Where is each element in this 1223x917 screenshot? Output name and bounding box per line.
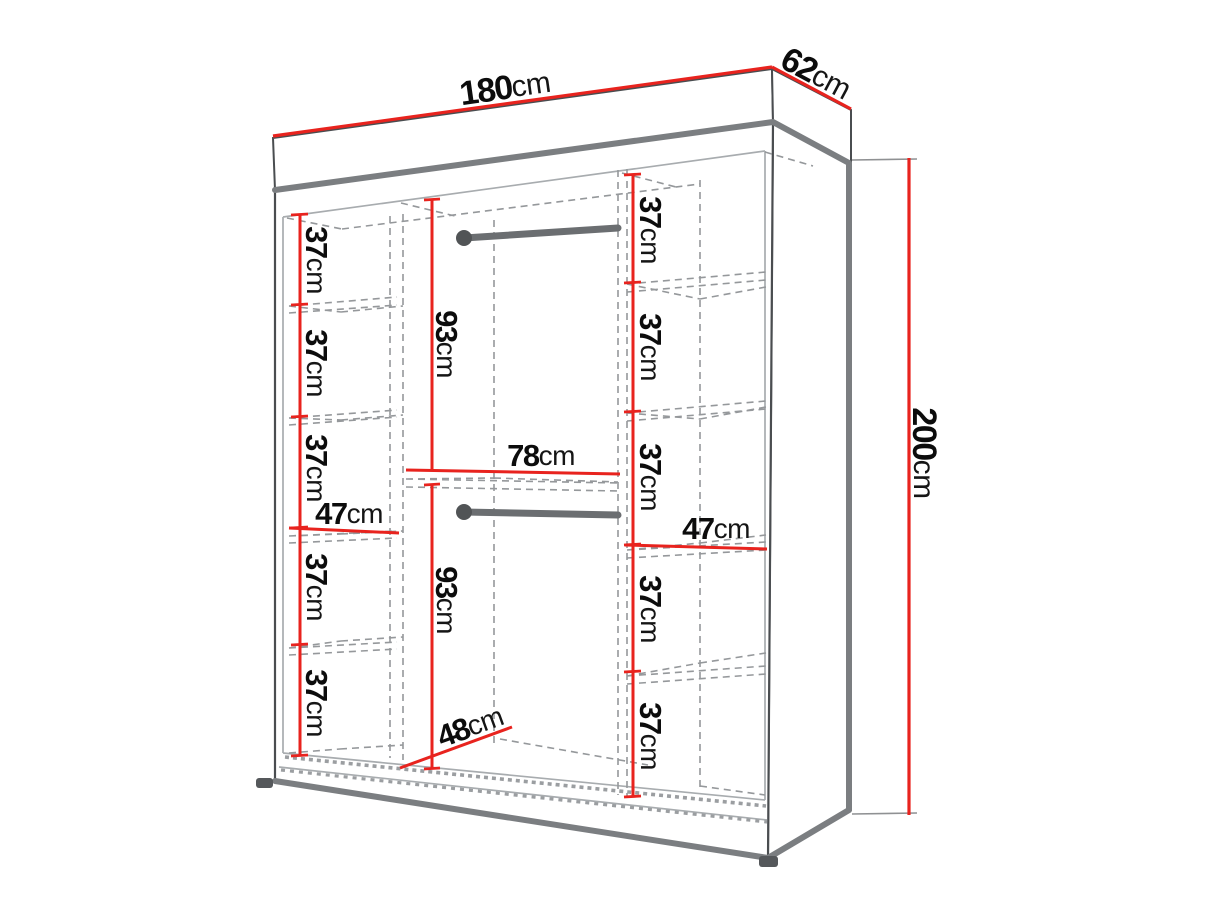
foot-left xyxy=(256,778,273,788)
lower-hanging-value: 93 xyxy=(430,566,465,599)
left-gap-4-unit: cm xyxy=(302,585,333,621)
left-gap-5-value: 37 xyxy=(300,669,335,701)
lower-rod-end-cap xyxy=(456,504,472,520)
upper-hanging-label: 93cm xyxy=(430,310,465,378)
middle-width-value: 78 xyxy=(507,438,540,473)
upper-hanging-unit: cm xyxy=(432,342,463,378)
lower-rod-bar xyxy=(464,512,618,515)
left-gap-4-label: 37cm xyxy=(300,553,335,621)
right-column-width-value: 47 xyxy=(682,511,714,546)
right-gap-2-label: 37cm xyxy=(634,313,669,381)
lower-hanging-label: 93cm xyxy=(430,566,465,634)
right-gap-1-value: 37 xyxy=(634,196,669,228)
right-side-face xyxy=(768,122,851,858)
right-gap-5-label: 37cm xyxy=(634,702,669,770)
right-gap-4-unit: cm xyxy=(636,607,667,643)
left-gap-4-value: 37 xyxy=(300,553,335,585)
left-column-width-label: 47cm xyxy=(315,496,383,531)
dim-overall-height: 200cm xyxy=(852,158,943,815)
left-gap-3-label: 37cm xyxy=(300,434,335,502)
dim-height-label: 200cm xyxy=(905,407,943,498)
left-gap-1-label: 37cm xyxy=(300,226,335,294)
diagram-canvas: 180cm 62cm 200cm 37cm 37cm 37cm 37cm 37c… xyxy=(0,0,1223,917)
left-gap-2-value: 37 xyxy=(300,329,335,361)
right-gap-3-value: 37 xyxy=(634,443,669,475)
dim-height-extension-lines xyxy=(852,159,917,814)
left-gap-2-unit: cm xyxy=(302,361,333,397)
right-gap-1-unit: cm xyxy=(636,228,667,264)
right-column-width-label: 47cm xyxy=(682,511,750,546)
left-gap-5-label: 37cm xyxy=(300,669,335,737)
left-gap-1-unit: cm xyxy=(302,258,333,294)
right-gap-4-value: 37 xyxy=(634,575,669,607)
upper-rod-end-cap xyxy=(456,230,472,246)
right-gap-2-value: 37 xyxy=(634,313,669,345)
right-gap-4-label: 37cm xyxy=(634,575,669,643)
middle-width-unit: cm xyxy=(539,440,575,471)
foot-right xyxy=(759,856,778,867)
left-gap-3-value: 37 xyxy=(300,434,335,466)
dim-width-value: 180 xyxy=(457,68,515,113)
left-gap-1-value: 37 xyxy=(300,226,335,258)
lower-hanging-unit: cm xyxy=(432,598,463,634)
left-gap-2-label: 37cm xyxy=(300,329,335,397)
dim-height-value: 200 xyxy=(905,407,943,460)
wardrobe-dimension-diagram: 180cm 62cm 200cm 37cm 37cm 37cm 37cm 37c… xyxy=(0,0,1223,917)
right-gap-3-unit: cm xyxy=(636,475,667,511)
right-column-width-unit: cm xyxy=(714,513,750,544)
right-gap-2-unit: cm xyxy=(636,345,667,381)
left-gap-5-unit: cm xyxy=(302,701,333,737)
right-gap-5-value: 37 xyxy=(634,702,669,734)
dim-height-unit: cm xyxy=(908,460,941,499)
upper-hanging-value: 93 xyxy=(430,310,465,343)
right-gap-3-label: 37cm xyxy=(634,443,669,511)
dim-width-unit: cm xyxy=(509,65,552,103)
left-column-width-value: 47 xyxy=(315,496,347,531)
right-gap-1-label: 37cm xyxy=(634,196,669,264)
right-gap-5-unit: cm xyxy=(636,734,667,770)
middle-width-label: 78cm xyxy=(507,438,575,473)
left-column-width-unit: cm xyxy=(347,498,383,529)
